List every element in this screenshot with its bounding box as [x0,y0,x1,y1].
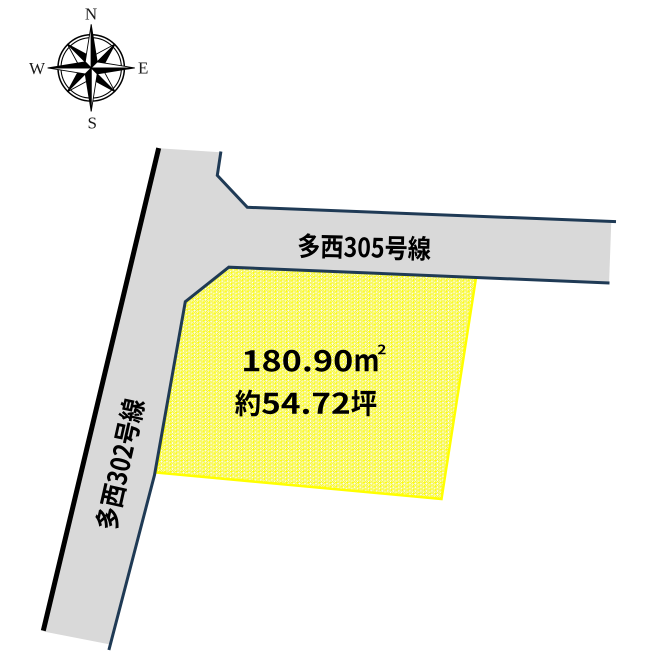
svg-text:E: E [138,59,148,78]
svg-text:N: N [85,5,97,24]
svg-text:S: S [87,113,96,132]
svg-text:W: W [29,59,46,78]
